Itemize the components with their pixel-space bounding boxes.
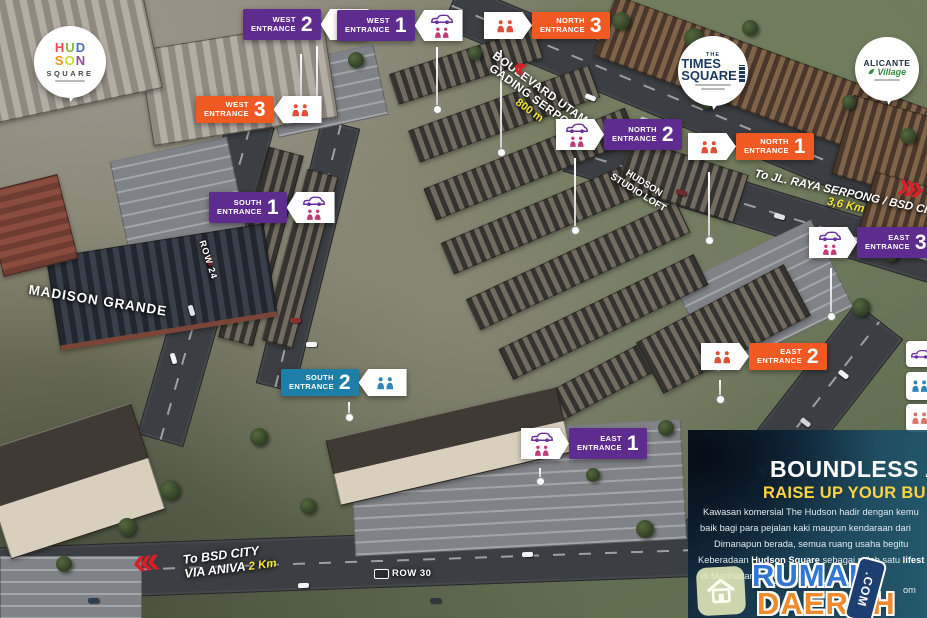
- logo-tagline-bar: [701, 88, 725, 90]
- panel-paragraph-line: Kawasan komersial The Hudson hadir denga…: [703, 507, 919, 517]
- leaf-icon: [868, 68, 875, 75]
- car: [298, 583, 309, 588]
- legend-car-tile: [906, 341, 927, 367]
- entrance-plate: SOUTHENTRANCE 2: [281, 369, 359, 396]
- entrance-badge-east-1: EASTENTRANCE 1: [521, 428, 647, 459]
- entrance-plate: SOUTHENTRANCE 1: [209, 192, 287, 223]
- panel-bold-text: lifest: [903, 555, 925, 565]
- entrance-plate: WESTENTRANCE 2: [243, 9, 321, 40]
- people-icon: [495, 19, 516, 33]
- logo-square-text: SQUARE: [681, 70, 737, 82]
- car-icon: [910, 348, 927, 360]
- entrance-badge-east-2: EASTENTRANCE 2: [701, 343, 827, 370]
- panel-title: BOUNDLESS A: [770, 456, 927, 483]
- entrance-access-tag: [556, 119, 604, 150]
- people-icon: [699, 140, 720, 154]
- tree: [742, 20, 758, 36]
- flag-pole: [708, 172, 710, 236]
- entrance-word: ENTRANCE: [612, 135, 657, 144]
- tree: [852, 298, 870, 316]
- bus-stop-icon: [374, 569, 389, 579]
- entrance-word: ENTRANCE: [757, 357, 802, 366]
- tree: [348, 52, 364, 68]
- entrance-number: 1: [627, 433, 639, 454]
- car: [290, 318, 301, 323]
- entrance-plate: WESTENTRANCE 1: [337, 10, 415, 41]
- tree: [250, 428, 268, 446]
- people-icon: [305, 209, 323, 220]
- panel-subtitle: RAISE UP YOUR BU: [763, 484, 926, 503]
- entrance-word: ENTRANCE: [540, 26, 585, 35]
- flag-pole: [348, 402, 350, 413]
- entrance-word: ENTRANCE: [251, 25, 296, 34]
- entrance-plate: WESTENTRANCE 3: [196, 96, 274, 123]
- flag-pole: [830, 268, 832, 312]
- tree: [468, 46, 482, 60]
- people-icon: [821, 244, 839, 255]
- tower-icon: [739, 65, 745, 82]
- entrance-plate: EASTENTRANCE 1: [569, 428, 647, 459]
- entrance-access-tag: [484, 12, 532, 39]
- bsd-direction-chevrons: [133, 555, 156, 572]
- tree: [160, 480, 180, 500]
- logo-tagline-bar: [695, 84, 731, 86]
- tree: [636, 520, 654, 538]
- entrance-word: ENTRANCE: [865, 243, 910, 252]
- alicante-village-logo: ALICANTE Village: [855, 37, 919, 101]
- watermark-house-icon: [696, 566, 746, 616]
- entrance-number: 1: [794, 136, 806, 157]
- panel-text-fragment: om: [903, 585, 916, 595]
- entrance-badge-south-2: SOUTHENTRANCE 2: [281, 369, 407, 396]
- entrance-number: 3: [254, 99, 266, 120]
- car: [306, 342, 317, 347]
- entrance-access-tag: [688, 133, 736, 160]
- logo-tagline-bar: [874, 79, 900, 81]
- hudson-square-logo: H U D S O N SQUARE: [34, 26, 106, 98]
- entrance-plate: NORTHENTRANCE 1: [736, 133, 814, 160]
- flag-dot: [536, 477, 545, 486]
- logo-letter: N: [76, 55, 85, 67]
- entrance-access-tag: [287, 192, 335, 223]
- entrance-access-tag: [521, 428, 569, 459]
- entrance-plate: EASTENTRANCE 2: [749, 343, 827, 370]
- people-icon: [533, 445, 551, 456]
- logo-tagline-bar: [55, 80, 85, 82]
- entrance-number: 3: [590, 15, 602, 36]
- car: [430, 598, 441, 603]
- flag-dot: [345, 413, 354, 422]
- car-icon: [530, 431, 554, 443]
- flag-dot: [497, 148, 506, 157]
- people-icon: [910, 411, 927, 425]
- tree: [300, 498, 316, 514]
- logo-village-text: Village: [877, 67, 906, 77]
- car-icon: [565, 122, 589, 134]
- entrance-number: 2: [301, 14, 313, 35]
- people-icon: [568, 136, 586, 147]
- entrance-badge-north-1: NORTHENTRANCE 1: [688, 133, 814, 160]
- tree: [118, 518, 136, 536]
- people-icon: [433, 27, 451, 38]
- entrance-word: ENTRANCE: [289, 383, 334, 392]
- tree: [658, 420, 674, 436]
- panel-paragraph-line: baik bagi para pejalan kaki maupun kenda…: [700, 523, 911, 533]
- times-square-logo: THE TIMES SQUARE: [678, 36, 748, 106]
- tree: [56, 556, 72, 572]
- entrance-number: 1: [267, 197, 279, 218]
- entrance-number: 2: [339, 372, 351, 393]
- logo-letter: O: [65, 55, 75, 67]
- entrance-access-tag: [415, 10, 463, 41]
- flag-dot: [571, 226, 580, 235]
- entrance-number: 2: [807, 346, 819, 367]
- people-icon: [375, 376, 396, 390]
- entrance-number: 3: [915, 232, 927, 253]
- entrance-plate: NORTHENTRANCE 3: [532, 12, 610, 39]
- people-icon: [910, 379, 927, 393]
- house-icon: [704, 574, 738, 608]
- entrance-plate: EASTENTRANCE 3: [857, 227, 927, 258]
- entrance-badge-north-2: NORTHENTRANCE 2: [556, 119, 682, 150]
- flag-pole: [436, 47, 438, 105]
- people-icon: [290, 103, 311, 117]
- entrance-badge-west-1: WESTENTRANCE 1: [337, 10, 463, 41]
- entrance-word: ENTRANCE: [577, 444, 622, 453]
- panel-text: Keberadaan: [698, 555, 751, 565]
- entrance-number: 1: [395, 15, 407, 36]
- entrance-access-tag: [274, 96, 322, 123]
- watermark-com-text: .COM: [854, 571, 877, 609]
- entrance-word: ENTRANCE: [204, 110, 249, 119]
- entrance-badge-east-3: EASTENTRANCE 3: [809, 227, 927, 258]
- tree: [586, 468, 600, 482]
- flag-dot: [705, 236, 714, 245]
- legend-people-pink-tile: [906, 404, 927, 432]
- entrance-word: ENTRANCE: [217, 208, 262, 217]
- flag-dot: [433, 105, 442, 114]
- car-icon: [302, 195, 326, 207]
- car: [522, 552, 533, 557]
- tree: [612, 12, 630, 30]
- car-icon: [818, 230, 842, 242]
- car-icon: [430, 13, 454, 25]
- tree: [900, 128, 916, 144]
- entrance-access-tag: [359, 369, 407, 396]
- flag-dot: [827, 312, 836, 321]
- logo-square-text: SQUARE: [46, 69, 93, 78]
- entrance-badge-west-3: WESTENTRANCE 3: [196, 96, 322, 123]
- entrance-access-tag: [809, 227, 857, 258]
- flag-pole: [719, 380, 721, 395]
- entrance-badge-south-1: SOUTHENTRANCE 1: [209, 192, 335, 223]
- logo-letter: S: [55, 55, 64, 67]
- car: [88, 598, 99, 603]
- flag-pole: [539, 468, 541, 477]
- legend-people-blue-tile: [906, 372, 927, 400]
- people-icon: [712, 350, 733, 364]
- site-plan-map: BOULEVARD UTAMA GADING SERPONG 800 m To …: [0, 0, 927, 618]
- flag-dot: [716, 395, 725, 404]
- entrance-access-tag: [701, 343, 749, 370]
- flag-pole: [574, 158, 576, 226]
- tree: [842, 95, 856, 109]
- entrance-plate: NORTHENTRANCE 2: [604, 119, 682, 150]
- flag-pole: [300, 54, 302, 96]
- entrance-word: ENTRANCE: [345, 26, 390, 35]
- entrance-number: 2: [662, 124, 674, 145]
- row30-label: ROW 30: [392, 568, 431, 579]
- entrance-word: ENTRANCE: [744, 147, 789, 156]
- panel-paragraph-line: Dimanapun berada, semua ruang usaha begi…: [714, 539, 908, 549]
- entrance-badge-north-3: NORTHENTRANCE 3: [484, 12, 610, 39]
